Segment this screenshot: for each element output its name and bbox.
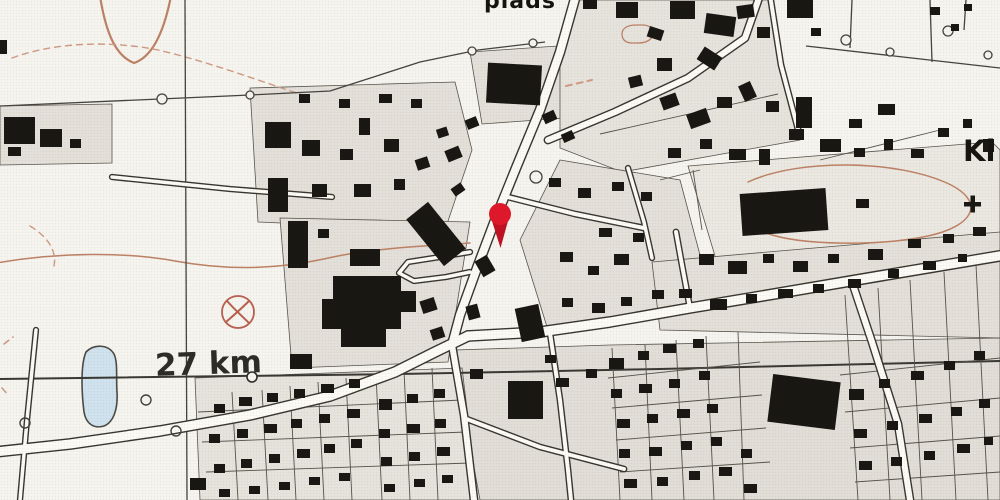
building: [384, 139, 399, 152]
building: [854, 148, 865, 157]
contour-line: [30, 226, 55, 266]
building: [974, 351, 985, 360]
building: [435, 419, 446, 428]
building: [209, 434, 220, 443]
boundary-tree-circle: [984, 51, 992, 59]
pond: [82, 346, 117, 427]
building: [689, 471, 700, 480]
building: [766, 101, 779, 112]
building: [312, 184, 327, 197]
map-canvas[interactable]: plads 27 km Ki: [0, 0, 1000, 500]
building: [911, 371, 924, 380]
building: [291, 419, 302, 428]
building: [908, 239, 921, 248]
building: [214, 404, 225, 413]
building: [681, 441, 692, 450]
building: [545, 355, 556, 363]
building: [609, 358, 624, 369]
building: [241, 459, 252, 468]
pin-head: [489, 203, 511, 225]
building: [578, 188, 591, 198]
contour-line: [4, 337, 13, 344]
building: [299, 94, 310, 103]
building: [70, 139, 81, 148]
building: [442, 475, 453, 483]
building: [633, 233, 644, 242]
building: [267, 393, 278, 402]
building: [923, 261, 936, 270]
building: [793, 261, 808, 272]
building: [354, 184, 371, 197]
building: [943, 234, 954, 243]
building: [190, 478, 206, 490]
building: [849, 119, 862, 128]
building: [757, 27, 770, 38]
building: [508, 381, 543, 419]
building: [820, 139, 841, 152]
building: [759, 149, 770, 165]
building: [624, 479, 637, 488]
building: [614, 254, 629, 265]
building: [586, 369, 597, 378]
building: [465, 304, 480, 321]
building: [711, 437, 722, 446]
building: [848, 279, 861, 288]
building: [641, 192, 652, 201]
building: [984, 437, 993, 445]
building: [265, 122, 291, 148]
building: [411, 99, 422, 108]
building: [789, 129, 804, 140]
building: [379, 429, 390, 438]
building: [379, 94, 392, 103]
building: [854, 429, 867, 438]
church-cross-icon: [971, 196, 976, 213]
building: [699, 254, 714, 265]
building: [611, 389, 622, 398]
building: [856, 199, 869, 208]
building: [868, 249, 883, 260]
building: [796, 97, 812, 128]
building: [884, 139, 893, 150]
building: [828, 254, 839, 263]
building: [309, 477, 320, 485]
building: [878, 104, 895, 115]
building: [888, 269, 899, 278]
building: [963, 119, 972, 128]
building: [619, 449, 630, 458]
building: [617, 419, 630, 428]
building: [911, 149, 924, 158]
building: [599, 228, 612, 237]
building: [964, 4, 972, 11]
building: [486, 63, 542, 106]
building: [40, 129, 62, 147]
building: [350, 249, 380, 266]
building: [381, 457, 392, 466]
building: [728, 261, 747, 274]
building: [951, 24, 959, 31]
building: [693, 339, 704, 348]
contour-line: [2, 388, 9, 396]
building: [811, 28, 821, 36]
building: [268, 178, 288, 212]
building: [891, 457, 902, 466]
building: [879, 379, 890, 388]
building: [944, 361, 955, 370]
building: [979, 399, 990, 408]
building: [887, 421, 898, 430]
building: [237, 429, 248, 438]
building: [8, 147, 21, 156]
building: [657, 58, 672, 71]
boundary-tree-circle: [246, 91, 254, 99]
building: [849, 389, 864, 400]
building: [319, 414, 330, 423]
building: [763, 254, 774, 263]
building: [340, 149, 353, 160]
building: [351, 439, 362, 448]
building: [736, 4, 755, 19]
building: [612, 182, 624, 191]
building: [717, 97, 732, 108]
building: [919, 414, 932, 423]
church-label-partial: Ki: [963, 134, 995, 168]
tree-circle: [141, 395, 151, 405]
building: [700, 139, 712, 149]
building: [549, 178, 561, 187]
building: [437, 447, 450, 456]
building: [707, 404, 718, 413]
building: [359, 118, 370, 135]
contour-line: [100, 0, 171, 63]
building: [324, 444, 335, 453]
building: [321, 384, 334, 393]
building: [339, 99, 350, 108]
building: [778, 289, 793, 298]
building: [616, 2, 638, 18]
building: [588, 266, 599, 275]
building: [409, 452, 420, 461]
building: [924, 451, 935, 460]
building: [583, 0, 597, 9]
boundary-tree-circle: [529, 39, 537, 47]
building: [639, 384, 652, 393]
building: [951, 407, 962, 416]
building: [719, 467, 732, 476]
building: [219, 489, 230, 497]
boundary-tree-circle: [157, 94, 167, 104]
boundary-tree-circle: [530, 171, 542, 183]
crossed-circle-mark: [222, 296, 254, 328]
building: [562, 298, 573, 307]
building: [214, 464, 225, 473]
building: [957, 444, 970, 453]
building: [347, 409, 360, 418]
road: [20, 330, 36, 500]
building: [556, 378, 569, 387]
building: [384, 484, 395, 492]
building: [859, 461, 872, 470]
building: [704, 13, 736, 37]
building: [668, 148, 681, 158]
building: [394, 179, 405, 190]
building: [729, 149, 746, 160]
building: [294, 389, 305, 398]
building: [710, 299, 727, 310]
building: [813, 284, 824, 293]
building: [592, 303, 605, 313]
building: [339, 473, 350, 481]
building: [379, 399, 392, 410]
boundary-tree-circle: [841, 35, 851, 45]
building: [679, 289, 692, 298]
building: [930, 7, 940, 15]
building: [973, 227, 986, 236]
building: [621, 297, 632, 306]
building: [649, 447, 662, 456]
building: [434, 389, 445, 398]
building: [669, 379, 680, 388]
building: [279, 482, 290, 490]
building: [938, 128, 949, 137]
building: [290, 354, 312, 369]
building: [670, 1, 695, 19]
building: [297, 449, 310, 458]
building: [249, 486, 260, 494]
boundary-tree-circle: [468, 47, 476, 55]
building: [264, 424, 277, 433]
building: [407, 394, 418, 403]
building: [746, 294, 757, 303]
building: [787, 0, 813, 18]
building: [740, 188, 829, 236]
building: [414, 479, 425, 487]
building: [638, 351, 649, 360]
building: [560, 252, 573, 262]
building: [288, 221, 308, 268]
building: [239, 397, 252, 406]
building: [269, 454, 280, 463]
building: [318, 229, 329, 238]
building: [767, 374, 840, 430]
building: [4, 117, 35, 144]
building: [657, 477, 668, 486]
building: [744, 484, 757, 493]
building: [958, 254, 967, 262]
building: [647, 414, 658, 423]
boundary-line: [806, 46, 1000, 68]
place-name-label-partial: plads: [484, 0, 556, 14]
building: [652, 290, 664, 299]
railway-km-marker-label: 27 km: [154, 344, 262, 384]
historic-town-map: [0, 0, 1000, 500]
boundary-tree-circle: [886, 48, 894, 56]
building: [349, 379, 360, 388]
building: [470, 369, 483, 379]
building: [663, 344, 676, 353]
building: [699, 371, 710, 380]
building: [0, 40, 7, 54]
building: [741, 449, 752, 458]
building: [302, 140, 320, 156]
building: [407, 424, 420, 433]
building: [677, 409, 690, 418]
